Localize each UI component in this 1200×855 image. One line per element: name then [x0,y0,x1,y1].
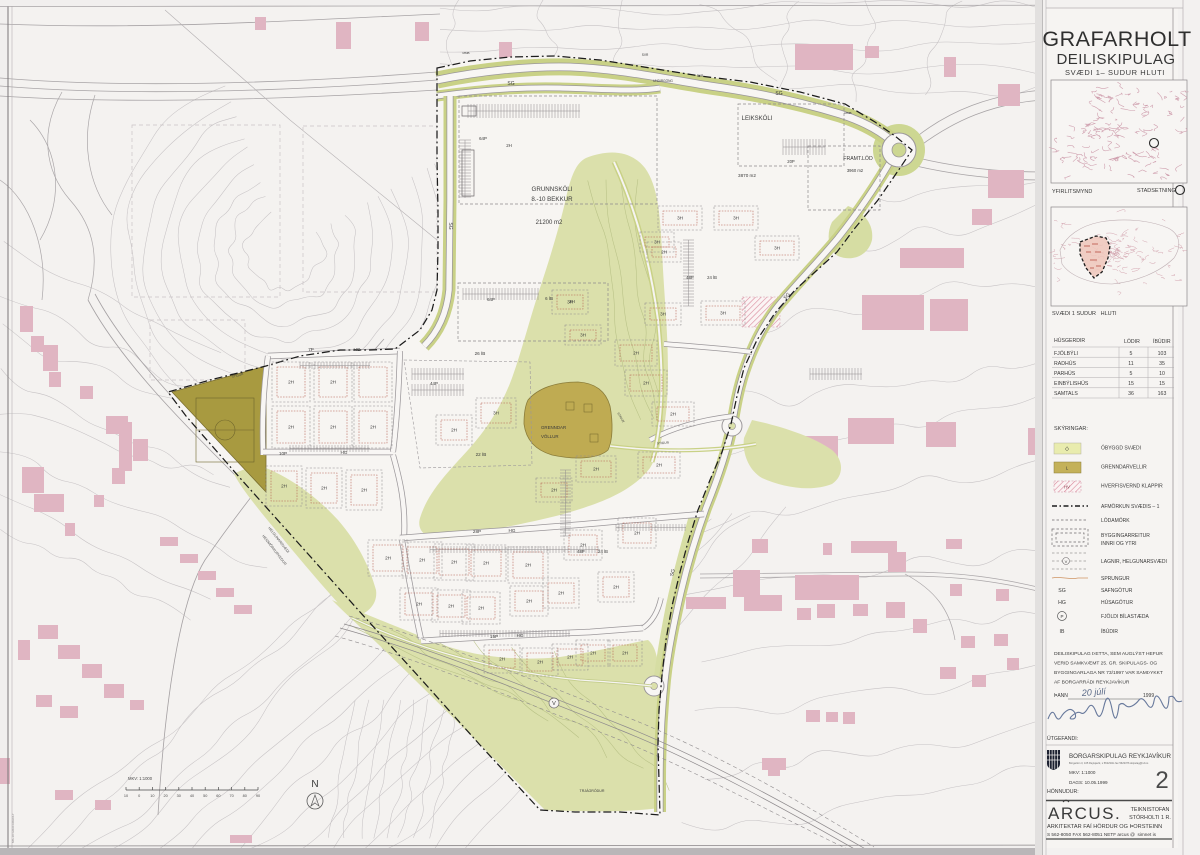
svg-text:3H: 3H [720,311,726,316]
svg-text:DEILISKIPULAG ÞETTA, SEM AU: DEILISKIPULAG ÞETTA, SEM AUGLÝST HEFUR [1054,650,1163,657]
svg-text:DAGS: 10.05.1999: DAGS: 10.05.1999 [1069,780,1108,785]
svg-text:10: 10 [124,794,128,798]
svg-text:2H: 2H [419,558,425,563]
svg-text:3960 m2: 3960 m2 [847,168,864,173]
svg-text:RADHÚS: RADHÚS [1054,360,1076,367]
svg-text:ÚTGEFANDI:: ÚTGEFANDI: [1047,735,1078,742]
svg-text:SVÆDI 1 SUDUR HLUTI: SVÆDI 1 SUDUR HLUTI [1052,311,1117,317]
svg-text:10P: 10P [279,451,287,456]
svg-text:70: 70 [229,794,233,798]
svg-text:20 júlí: 20 júlí [1080,686,1107,698]
svg-text:48P: 48P [577,549,585,554]
svg-text:22 ÍB: 22 ÍB [476,451,487,457]
svg-text:8.-10 BEKKUR: 8.-10 BEKKUR [531,196,573,203]
svg-text:2H: 2H [451,560,457,565]
svg-text:LÓDIR: LÓDIR [1124,338,1140,345]
svg-text:20P: 20P [787,159,795,164]
svg-text:2H: 2H [622,651,628,656]
svg-text:SG: SG [507,81,514,87]
svg-text:GRENNDAR: GRENNDAR [541,425,566,430]
svg-text:48P: 48P [686,275,694,280]
svg-text:15: 15 [1128,381,1134,387]
svg-text:GRUNNSKÓLI: GRUNNSKÓLI [532,186,573,193]
svg-text:LEIKSKÓLI: LEIKSKÓLI [742,115,773,122]
svg-text:64P: 64P [487,297,495,302]
svg-text:MMB: MMB [463,51,470,55]
svg-text:VERID SAMKVÆMT 25. GR. SKIPU: VERID SAMKVÆMT 25. GR. SKIPULAGS- OG [1054,661,1157,667]
svg-text:2H: 2H [670,412,676,417]
svg-text:BYGGINGARREITUR: BYGGINGARREITUR [1101,533,1150,539]
svg-text:SG: SG [447,222,453,229]
svg-text:2H: 2H [634,531,640,536]
svg-text:36: 36 [1128,391,1134,397]
svg-text:30: 30 [177,794,181,798]
svg-text:2H: 2H [288,380,294,385]
svg-text:LÓDAMÖRK: LÓDAMÖRK [1101,517,1130,524]
svg-text:V: V [1065,559,1068,564]
svg-text:HG: HG [509,528,516,533]
svg-text:UNDIRGÖNG: UNDIRGÖNG [653,79,673,83]
svg-text:MKV: 1:1000: MKV: 1:1000 [128,776,153,781]
svg-text:21200 m2: 21200 m2 [536,220,563,226]
svg-text:MS-10 GRAFARHOLT: MS-10 GRAFARHOLT [11,813,15,843]
svg-text:ÍBÚDIR: ÍBÚDIR [1101,628,1118,635]
svg-text:2H: 2H [448,604,454,609]
svg-text:2H: 2H [558,591,564,596]
svg-text:2H: 2H [526,599,532,604]
svg-text:2H: 2H [451,428,457,433]
svg-text:FJÖLBÝLI: FJÖLBÝLI [1054,350,1078,357]
svg-text:TEIKNISTOFAN: TEIKNISTOFAN [1131,807,1170,813]
svg-text:INNRI OG YTRI: INNRI OG YTRI [1101,541,1136,547]
svg-text:24 ÍB: 24 ÍB [707,275,717,280]
svg-text:2H: 2H [499,657,505,662]
svg-text:2H: 2H [288,425,294,430]
svg-text:SG: SG [775,91,782,97]
svg-text:2H: 2H [416,602,422,607]
svg-text:35: 35 [1159,361,1165,367]
svg-text:2H: 2H [537,660,543,665]
svg-text:163: 163 [1158,391,1167,397]
svg-text:S 562-8050 FAX 562-8051 NET: S 562-8050 FAX 562-8051 NETF arcus @ sim… [1047,832,1157,837]
svg-text:FJÖLDI BÍLASTÆDA: FJÖLDI BÍLASTÆDA [1101,613,1149,620]
svg-text:2H: 2H [506,143,512,148]
svg-text:2H: 2H [525,563,531,568]
svg-text:P: P [1060,614,1063,619]
svg-text:HV: HV [1064,485,1070,490]
svg-text:6 ÍB: 6 ÍB [545,296,553,301]
svg-text:BYGGINGARLAGA NR 73/1997 V: BYGGINGARLAGA NR 73/1997 VAR SAMÞYKKT [1054,670,1163,676]
svg-text:ÞANN: ÞANN [1054,693,1068,699]
svg-text:11: 11 [1128,361,1133,367]
svg-text:2: 2 [1155,767,1168,794]
svg-text:3H: 3H [493,411,499,416]
svg-text:2H: 2H [483,561,489,566]
svg-text:3H: 3H [580,333,586,338]
svg-text:2H: 2H [613,585,619,590]
svg-text:60: 60 [216,794,220,798]
svg-text:SPRUNGUR: SPRUNGUR [1101,576,1130,582]
svg-text:2H: 2H [590,651,596,656]
svg-text:EINBÝLISHÚS: EINBÝLISHÚS [1054,380,1089,387]
svg-text:ARCUS.: ARCUS. [1048,804,1121,823]
svg-text:5: 5 [1130,351,1133,357]
svg-text:2H: 2H [385,556,391,561]
svg-text:ÓBYGGD SVÆDI: ÓBYGGD SVÆDI [1101,445,1141,452]
svg-text:Borgartún 3, 105 Reykjavík, s: Borgartún 3, 105 Reykjavík, s 563234G fa… [1069,761,1149,765]
svg-text:2H: 2H [330,380,336,385]
svg-text:BORGARSKIPULAG REYKJAVÍKUR: BORGARSKIPULAG REYKJAVÍKUR [1069,753,1172,760]
svg-text:N: N [311,779,318,790]
svg-text:20: 20 [163,794,167,798]
svg-text:AF BORGARRÁDI REYKJAVÍKUR: AF BORGARRÁDI REYKJAVÍKUR [1054,679,1130,686]
svg-text:2H: 2H [281,484,287,489]
svg-text:3H: 3H [660,312,666,317]
svg-text:SKÝRINGAR:: SKÝRINGAR: [1054,425,1088,432]
svg-text:SG: SG [1058,588,1066,594]
svg-text:HVERFISVERND KLAPPIR: HVERFISVERND KLAPPIR [1101,484,1163,490]
svg-text:IB: IB [1060,629,1065,635]
svg-text:10: 10 [150,794,154,798]
svg-text:SVÆDI 1– SUDUR HLUTI: SVÆDI 1– SUDUR HLUTI [1065,68,1165,77]
svg-text:2H: 2H [593,467,599,472]
svg-text:15: 15 [1159,381,1165,387]
svg-text:28P: 28P [473,529,481,534]
svg-text:Ó: Ó [1065,446,1069,452]
svg-text:HÚSGERDIR: HÚSGERDIR [1054,337,1085,344]
svg-text:2H: 2H [567,655,573,660]
svg-text:3870 m2: 3870 m2 [738,173,756,178]
svg-text:24 ÍB: 24 ÍB [598,549,608,554]
svg-text:80: 80 [243,794,247,798]
svg-text:ARKITEKTAR FAÍ HÖRDUR OG Þ: ARKITEKTAR FAÍ HÖRDUR OG ÞORSTEINN [1047,823,1162,830]
svg-text:MMB: MMB [845,111,852,115]
svg-text:HG: HG [1058,600,1066,606]
svg-text:SAFNGÖTUR: SAFNGÖTUR [1101,587,1133,594]
svg-text:STÓRHOLTI 1 R.: STÓRHOLTI 1 R. [1129,814,1171,821]
svg-text:3H: 3H [733,216,739,221]
svg-text:2H: 2H [361,488,367,493]
svg-text:FRAMT.LÓD: FRAMT.LÓD [843,155,873,162]
svg-text:2H: 2H [656,463,662,468]
svg-text:0: 0 [138,794,140,798]
svg-text:2H: 2H [633,351,639,356]
svg-text:LAGNIR, HELGUNARSVÆDI: LAGNIR, HELGUNARSVÆDI [1101,559,1167,565]
svg-text:STADSETNING: STADSETNING [1137,188,1176,194]
svg-text:44P: 44P [430,381,438,386]
svg-text:3H: 3H [677,216,683,221]
svg-text:DEILISKIPULAG: DEILISKIPULAG [1056,51,1175,68]
svg-text:2H: 2H [370,425,376,430]
svg-text:ÍBÚDIR: ÍBÚDIR [1153,338,1171,345]
svg-text:15P: 15P [490,634,498,639]
svg-text:PARHÚS: PARHÚS [1054,370,1076,377]
svg-text:HG: HG [517,633,524,638]
svg-text:SVR: SVR [642,53,649,57]
svg-text:HG: HG [341,450,348,455]
svg-text:2H: 2H [643,381,649,386]
svg-text:2H: 2H [580,543,586,548]
svg-text:7P: 7P [308,347,314,352]
svg-text:1999: 1999 [1143,693,1154,699]
svg-text:2H: 2H [478,606,484,611]
svg-text:2H: 2H [661,250,667,255]
svg-text:YFIRLITSMYND: YFIRLITSMYND [1052,189,1092,195]
svg-text:103: 103 [1158,351,1167,357]
svg-text:64P: 64P [479,136,487,141]
svg-text:HÚSAGÖTUR: HÚSAGÖTUR [1101,599,1133,606]
svg-text:26 ÍB: 26 ÍB [475,350,486,356]
svg-text:2H: 2H [330,425,336,430]
svg-text:10: 10 [1159,371,1165,377]
svg-text:HG: HG [354,347,361,352]
svg-text:3H: 3H [774,246,780,251]
svg-text:VÖLLUR: VÖLLUR [541,434,559,439]
svg-text:GRENNDARVELLIR: GRENNDARVELLIR [1101,465,1147,471]
svg-text:SVR: SVR [697,74,704,78]
svg-text:MKV: 1:1000: MKV: 1:1000 [1069,770,1096,775]
svg-text:TRJÁGRÓDUR: TRJÁGRÓDUR [580,788,605,793]
svg-text:AFMÖRKUN SVÆDIS – 1: AFMÖRKUN SVÆDIS – 1 [1101,503,1160,510]
svg-text:GRAFARHOLT: GRAFARHOLT [1042,27,1191,51]
svg-text:2H: 2H [551,488,557,493]
svg-text:3H: 3H [569,299,575,304]
svg-text:50: 50 [203,794,207,798]
svg-text:2H: 2H [321,486,327,491]
svg-text:SAMTALS: SAMTALS [1054,391,1078,397]
svg-text:V: V [552,701,556,707]
svg-text:90: 90 [256,794,260,798]
svg-text:40: 40 [190,794,194,798]
svg-text:HÖNNUDUR:: HÖNNUDUR: [1047,788,1079,795]
svg-text:5: 5 [1130,371,1133,377]
